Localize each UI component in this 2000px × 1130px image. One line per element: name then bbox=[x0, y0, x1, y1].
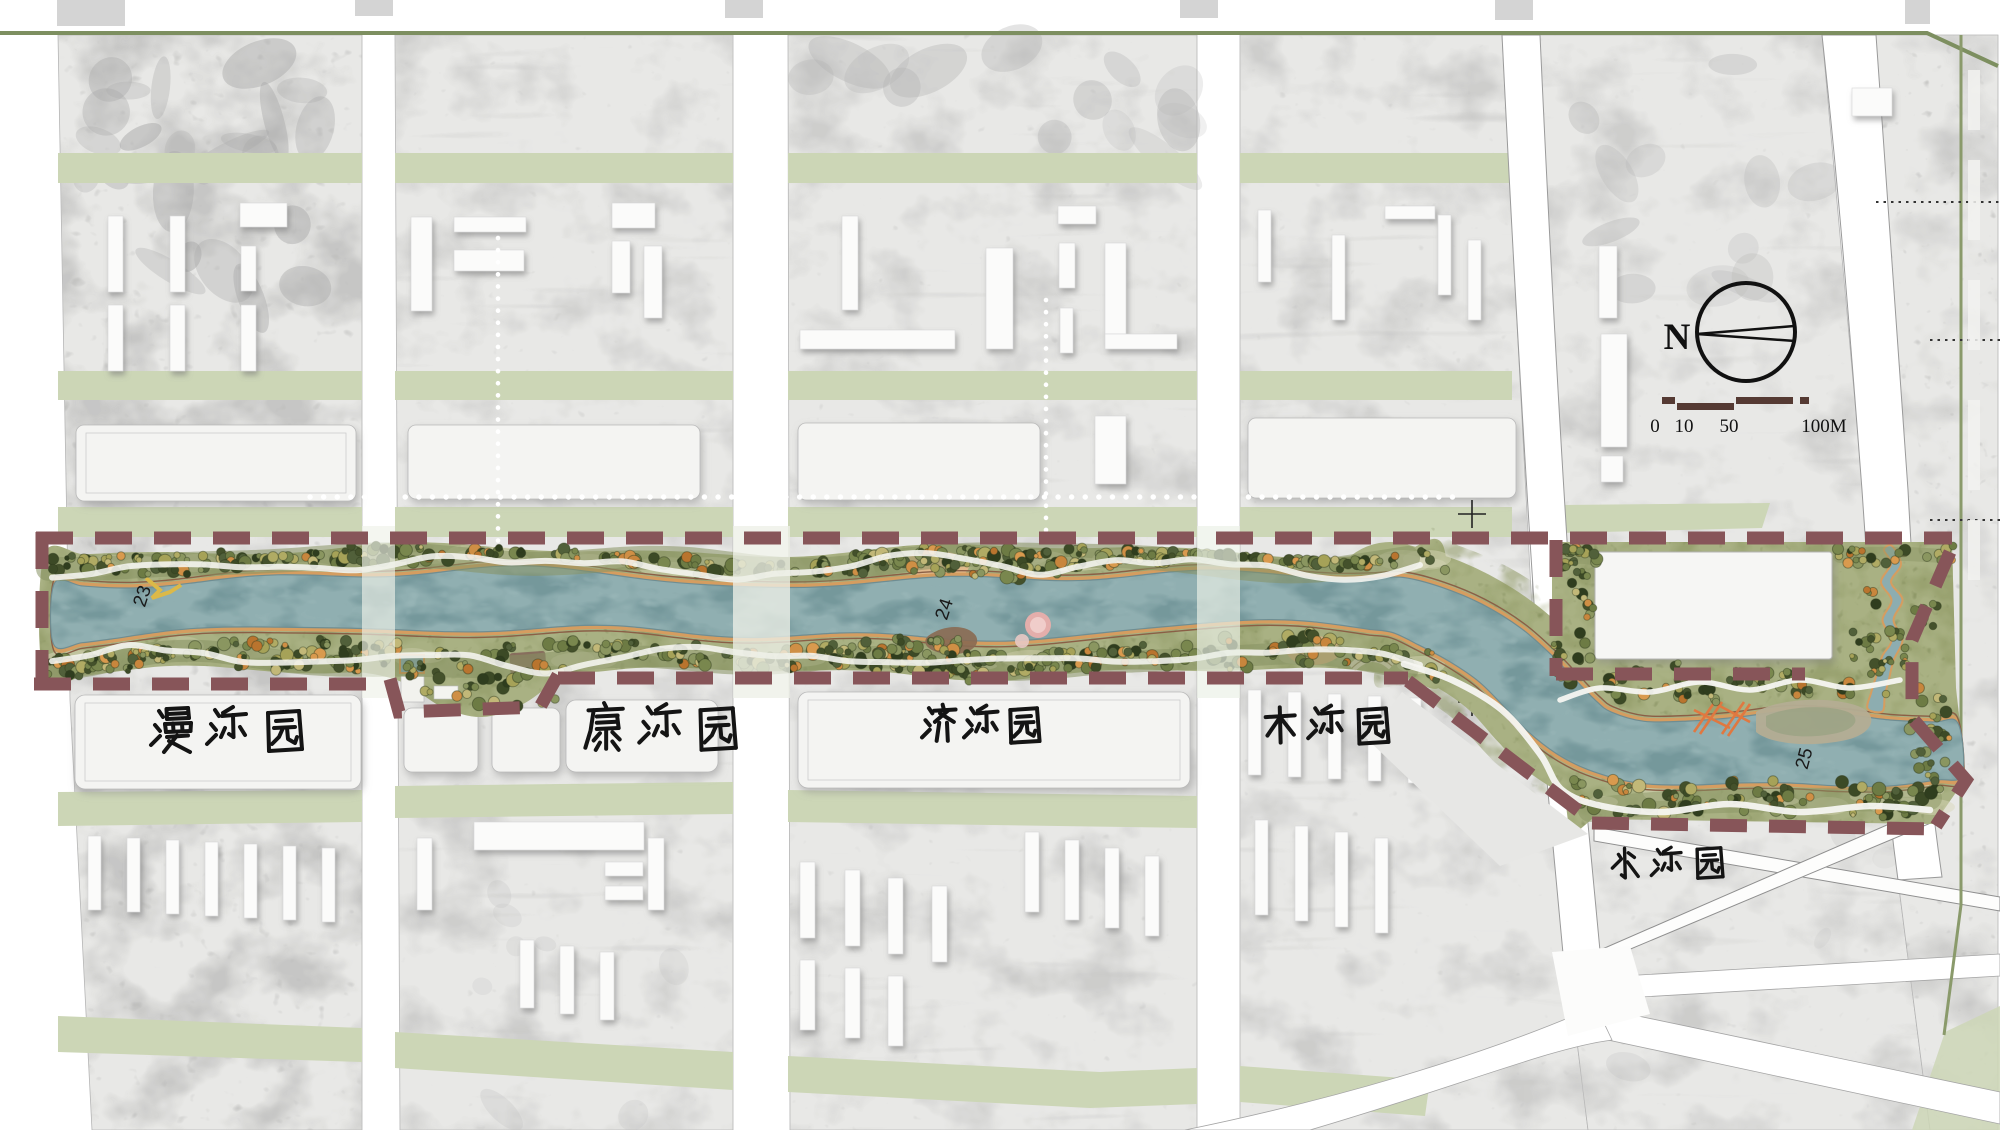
svg-text:50: 50 bbox=[1720, 416, 1739, 437]
svg-text:100M: 100M bbox=[1801, 416, 1847, 437]
svg-text:10: 10 bbox=[1675, 416, 1694, 437]
svg-text:0: 0 bbox=[1650, 416, 1660, 437]
svg-text:N: N bbox=[1664, 317, 1691, 358]
